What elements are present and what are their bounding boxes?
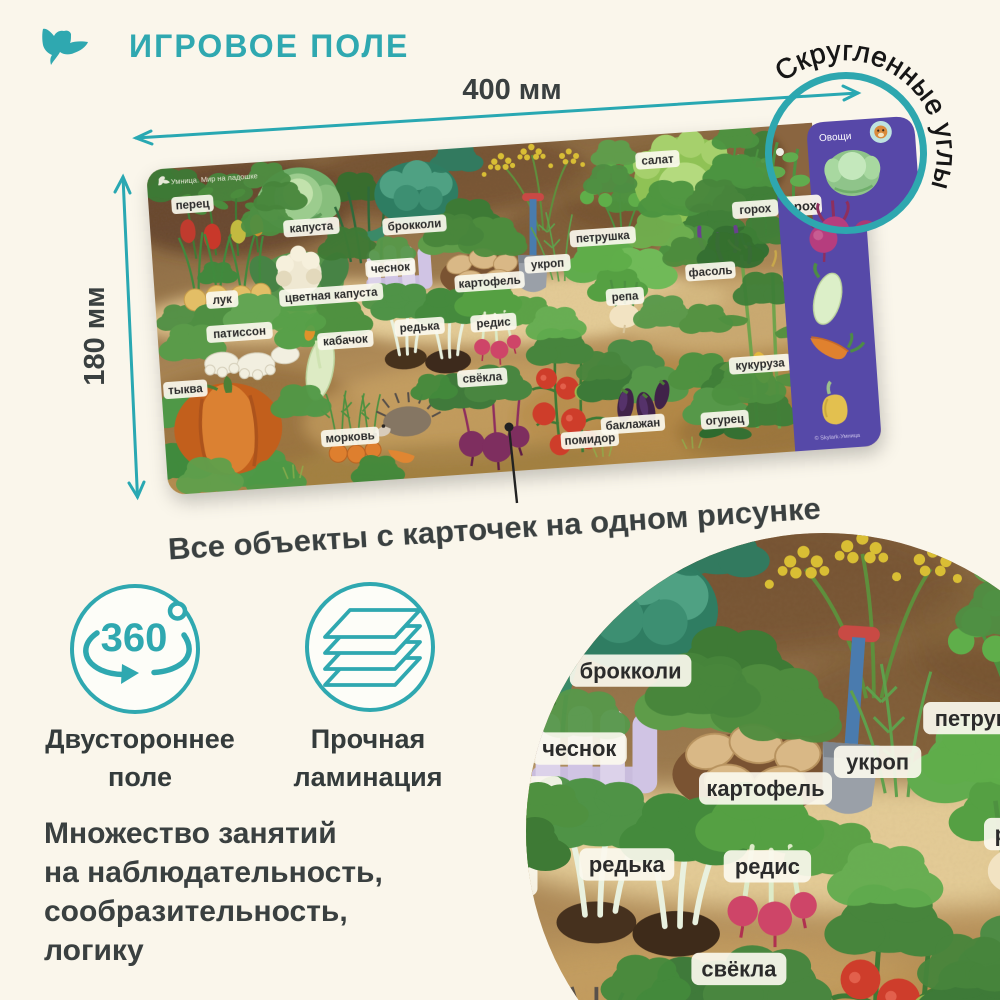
svg-text:ИГРОВОЕ ПОЛЕ: ИГРОВОЕ ПОЛЕ <box>129 28 409 64</box>
svg-text:400 мм: 400 мм <box>462 74 561 106</box>
svg-text:Прочная: Прочная <box>311 724 425 754</box>
svg-text:Множество занятий: Множество занятий <box>44 817 337 850</box>
svg-text:Овощи: Овощи <box>819 131 852 144</box>
svg-text:сообразительность,: сообразительность, <box>44 895 348 928</box>
svg-text:на наблюдательность,: на наблюдательность, <box>44 856 383 889</box>
svg-text:логику: логику <box>44 934 144 967</box>
svg-text:180 мм: 180 мм <box>79 286 111 385</box>
svg-text:360: 360 <box>101 616 168 660</box>
svg-text:поле: поле <box>108 762 172 792</box>
svg-text:Двустороннее: Двустороннее <box>45 724 235 754</box>
svg-text:ламинация: ламинация <box>293 762 442 792</box>
